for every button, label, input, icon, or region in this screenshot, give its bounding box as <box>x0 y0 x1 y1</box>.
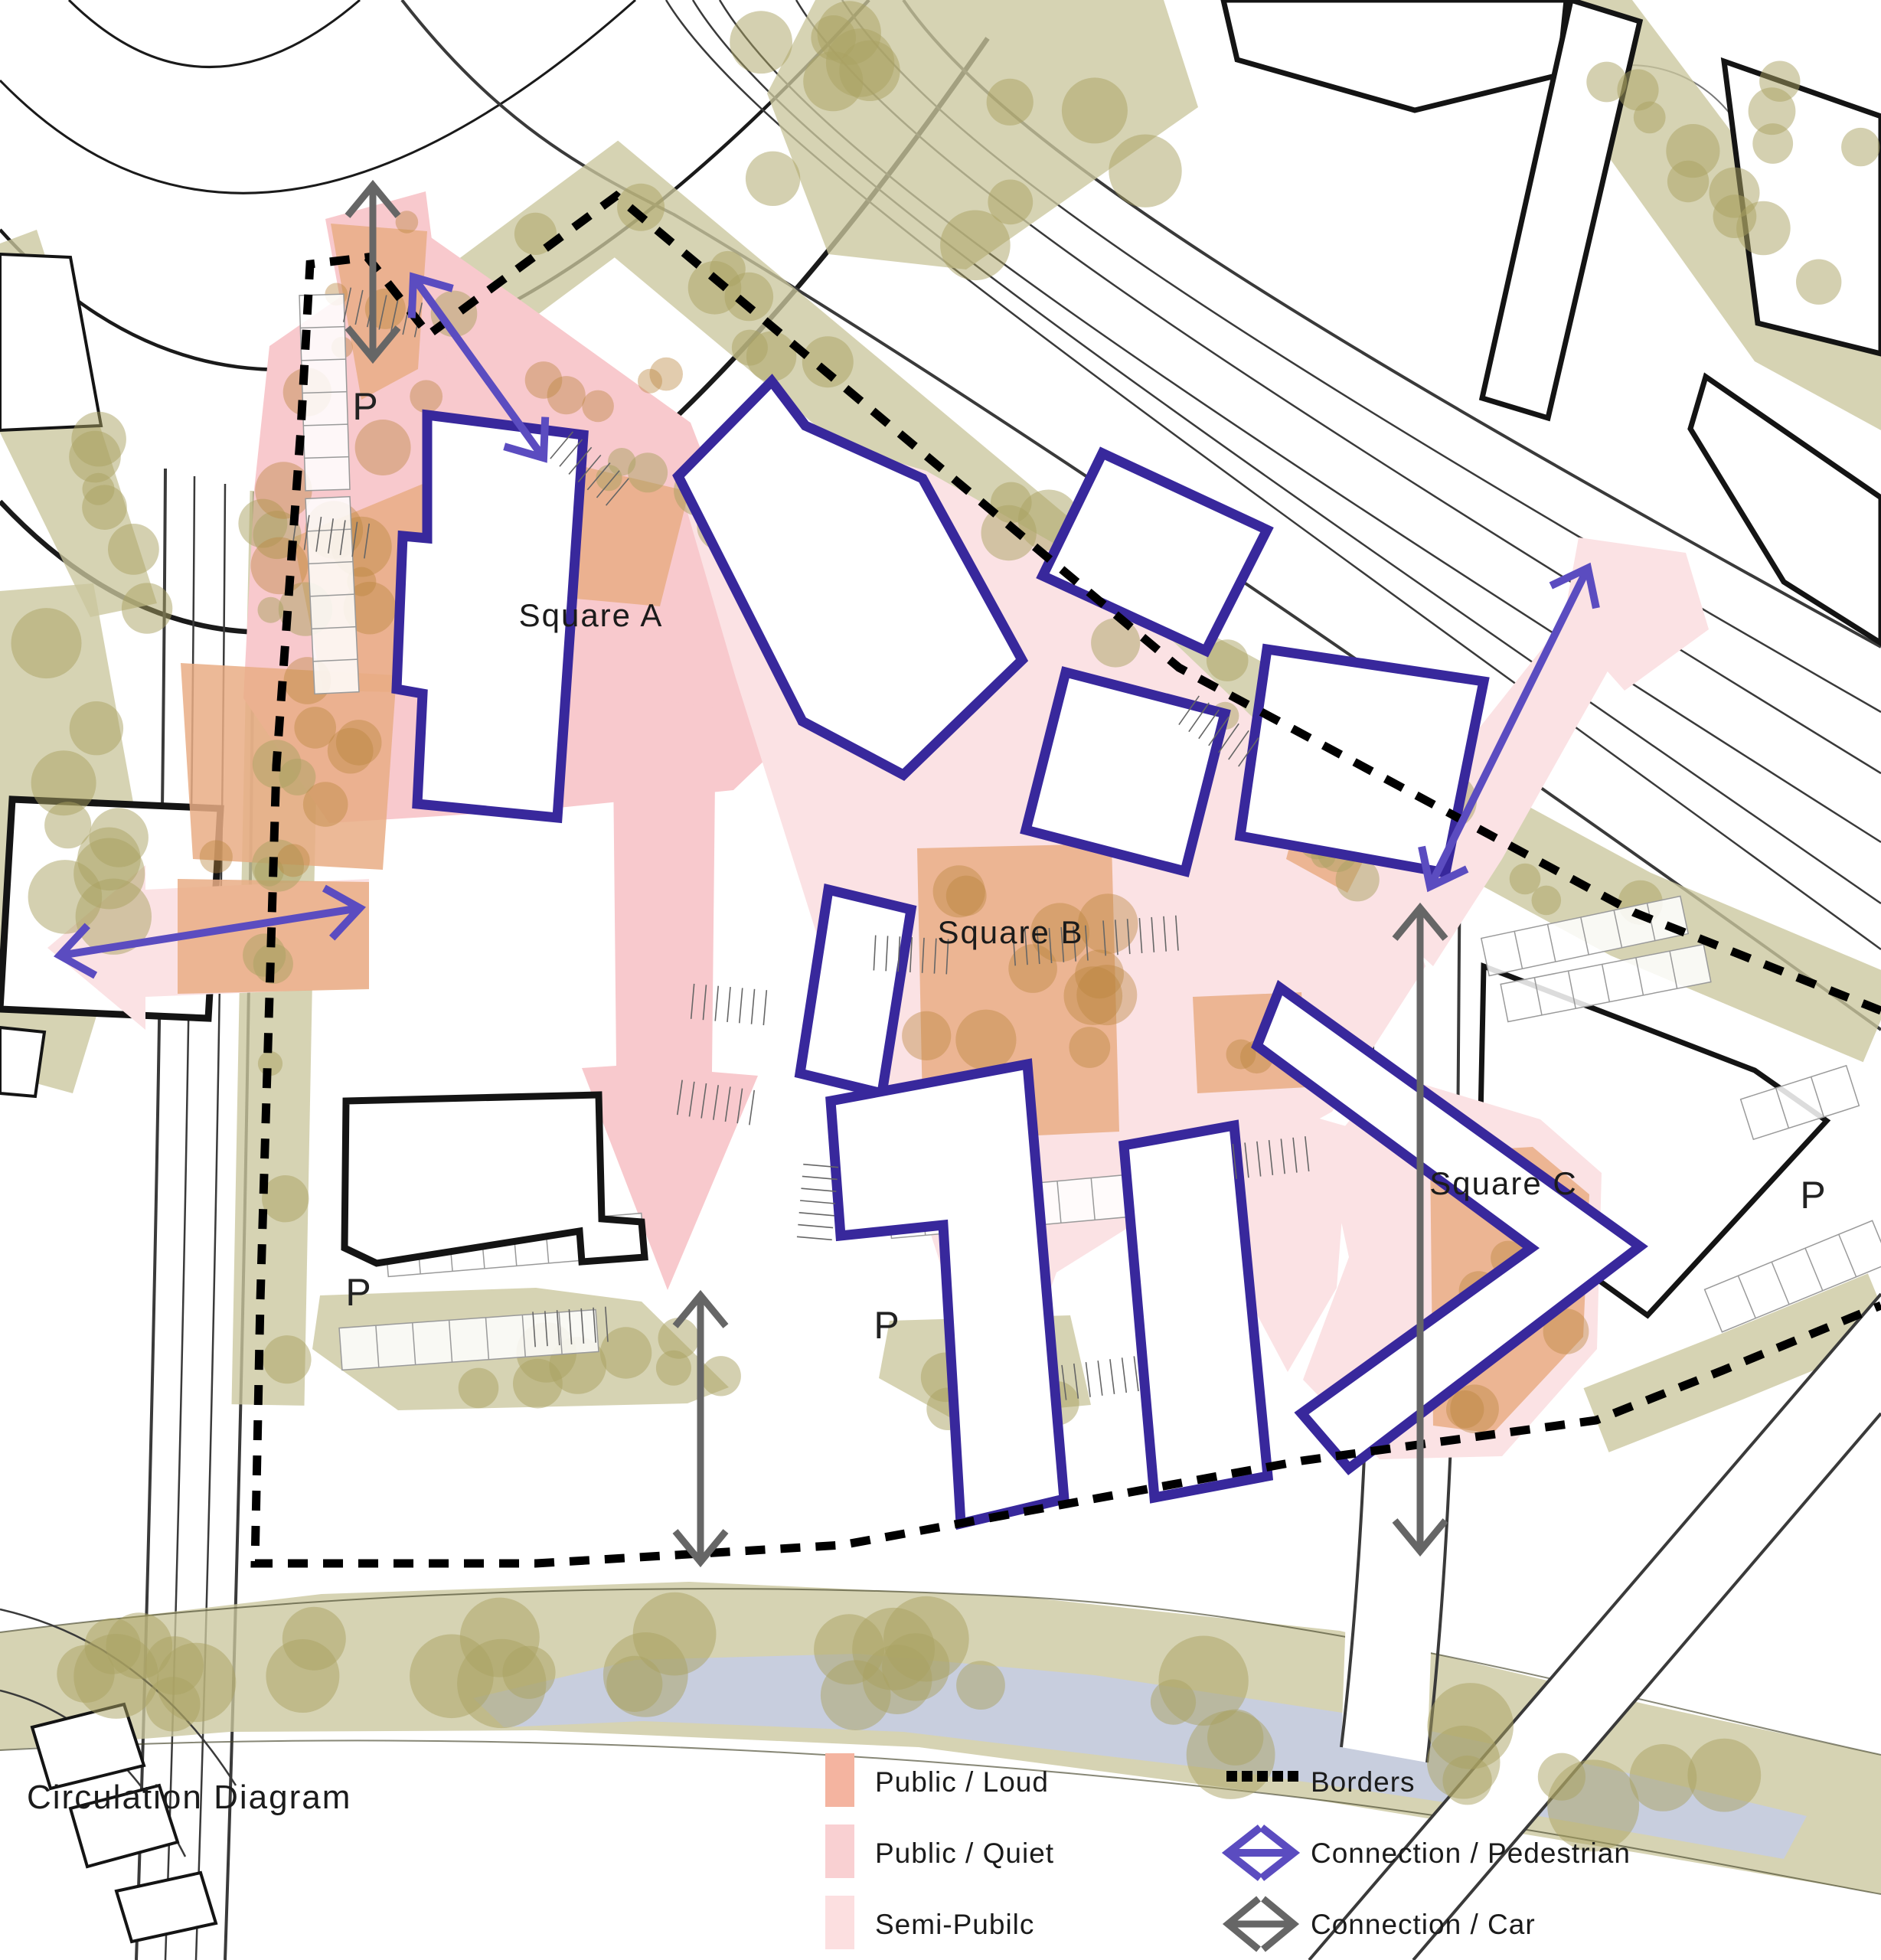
legend-swatch-public-loud <box>825 1753 854 1807</box>
label-parking-east: P <box>1800 1174 1825 1217</box>
label-square-a: Square A <box>519 597 664 633</box>
legend-swatch-public-quiet <box>825 1824 854 1878</box>
label-parking-south: P <box>874 1304 899 1347</box>
legend-car-arrow-icon <box>1228 1899 1294 1949</box>
circulation-diagram-page: Square A Square B Square C P P P P Circu… <box>0 0 1881 1960</box>
label-square-c: Square C <box>1429 1165 1577 1201</box>
legend-label-semi-public: Semi-Pubilc <box>875 1909 1034 1940</box>
legend-label-public-quiet: Public / Quiet <box>875 1837 1054 1869</box>
label-parking-northwest: P <box>352 385 377 428</box>
legend-label-borders: Borders <box>1311 1766 1416 1798</box>
legend-label-public-loud: Public / Loud <box>875 1766 1049 1798</box>
label-square-b: Square B <box>937 914 1083 950</box>
existing-building-southwest <box>345 1095 645 1263</box>
label-parking-southwest: P <box>345 1271 371 1314</box>
legend-label-car: Connection / Car <box>1311 1909 1536 1940</box>
legend-swatch-semi-public <box>825 1896 854 1949</box>
legend-pedestrian-arrow-icon <box>1228 1828 1294 1878</box>
page-title: Circulation Diagram <box>27 1779 351 1816</box>
site-plan-canvas: Square A Square B Square C P P P P Circu… <box>0 0 1881 1960</box>
legend-label-pedestrian: Connection / Pedestrian <box>1311 1837 1631 1869</box>
